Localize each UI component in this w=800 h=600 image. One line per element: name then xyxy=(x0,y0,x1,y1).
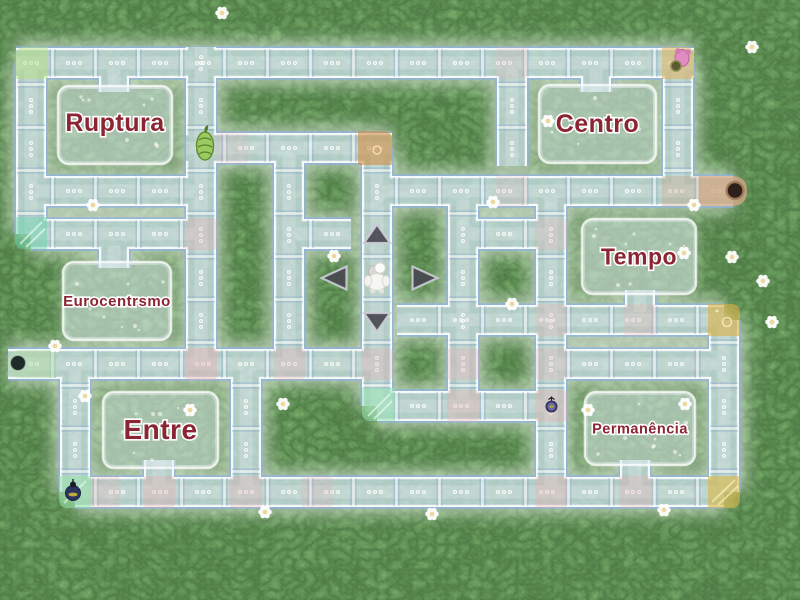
svg-text:Centro: Centro xyxy=(556,110,640,138)
svg-text:Eurocentrsmo: Eurocentrsmo xyxy=(63,293,171,310)
svg-text:Ruptura: Ruptura xyxy=(65,109,165,137)
svg-text:Permanência: Permanência xyxy=(592,422,688,438)
svg-text:Entre: Entre xyxy=(123,414,197,445)
svg-text:Tempo: Tempo xyxy=(601,244,677,270)
